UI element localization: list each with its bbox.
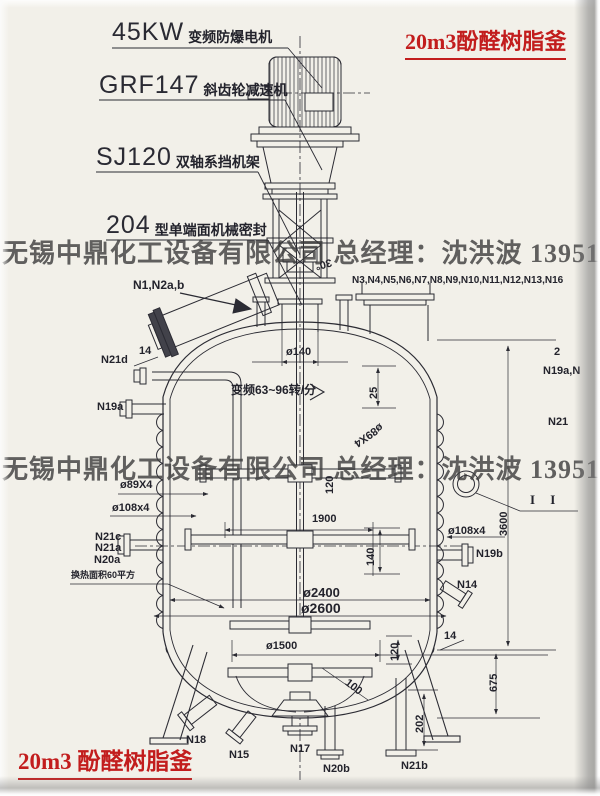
nozzle-label-top-row: N3,N4,N5,N6,N7,N8,N9,N10,N11,N12,N13,N16 xyxy=(352,276,563,286)
nozzle-label-n19a: N19a xyxy=(97,402,123,413)
dim-202: 202 xyxy=(415,715,426,733)
callout-seal-code: 204 xyxy=(106,211,151,240)
dim-phi1500: ø1500 xyxy=(266,641,297,652)
callout-motor-code: 45KW xyxy=(112,18,184,47)
callout-frame: SJ120 双轴系挡机架 xyxy=(96,143,260,172)
nozzle-label-n18: N18 xyxy=(186,735,206,746)
dim-120-lower: 120 xyxy=(390,643,401,661)
nozzle-label-n19b: N19b xyxy=(476,549,503,560)
photographed-engineering-drawing: 无锡中鼎化工设备有限公司 总经理：沈洪波 13951588488 无锡中鼎化工设… xyxy=(0,0,600,796)
nozzle-label-n1-n2: N1,N2a,b xyxy=(133,279,184,291)
nozzle-label-n15: N15 xyxy=(229,750,249,761)
dim-140: 140 xyxy=(366,548,377,566)
dim-25: 25 xyxy=(369,387,380,399)
callout-seal-desc: 型单端面机械密封 xyxy=(155,220,267,240)
nozzle-label-n20a: N20a xyxy=(94,555,120,566)
watermark-text: 无锡中鼎化工设备有限公司 总经理：沈洪波 13951588488 xyxy=(2,233,600,270)
callout-seal: 204 型单端面机械密封 xyxy=(106,211,267,240)
dim-14-left: 14 xyxy=(139,346,151,357)
callout-motor: 45KW 变频防爆电机 xyxy=(112,18,272,47)
dim-phi2600: ø2600 xyxy=(301,601,341,615)
callout-reducer-desc: 斜齿轮减速机 xyxy=(203,80,287,100)
dim-phi140: ø140 xyxy=(286,347,311,358)
nozzle-label-n17: N17 xyxy=(290,744,310,755)
photo-edge-right xyxy=(574,0,600,796)
callout-reducer: GRF147 斜齿轮减速机 xyxy=(99,71,287,100)
nozzle-label-n20b: N20b xyxy=(323,764,350,775)
note-speed: 变频63~96转/分 xyxy=(231,384,316,396)
dim-14-right: 14 xyxy=(444,631,456,642)
dim-1900: 1900 xyxy=(312,514,336,525)
dim-pipe-right: ø108x4 xyxy=(448,526,485,537)
callout-reducer-code: GRF147 xyxy=(99,71,199,100)
note-heat-area: 换热面积60平方 xyxy=(71,571,135,580)
title-bottom-left: 20m3 酚醛树脂釜 xyxy=(18,742,192,780)
callout-frame-code: SJ120 xyxy=(96,143,172,172)
callout-frame-desc: 双轴系挡机架 xyxy=(176,152,260,172)
dim-675: 675 xyxy=(489,674,500,692)
dim-phi2400: ø2400 xyxy=(303,586,340,599)
nozzle-label-n14: N14 xyxy=(457,580,477,591)
vessel-drawing xyxy=(0,0,600,796)
title-top-right: 20m3酚醛树脂釜 xyxy=(405,24,566,60)
dim-120-upper: 120 xyxy=(325,476,336,494)
dim-coil-left: ø89X4 xyxy=(120,480,152,491)
watermark-text: 无锡中鼎化工设备有限公司 总经理：沈洪波 13951588488 xyxy=(2,449,600,486)
nozzle-label-n21a: N21a xyxy=(95,543,121,554)
photo-edge-bottom xyxy=(0,776,600,796)
dim-pipe-left: ø108x4 xyxy=(112,503,149,514)
nozzle-label-n21b: N21b xyxy=(401,761,428,772)
dim-3600: 3600 xyxy=(499,512,510,536)
callout-motor-desc: 变频防爆电机 xyxy=(188,27,272,47)
section-mark: I I xyxy=(530,493,561,506)
nozzle-label-n21d: N21d xyxy=(101,355,128,366)
photo-edge-left xyxy=(0,0,9,796)
photo-edge-top xyxy=(0,0,600,8)
